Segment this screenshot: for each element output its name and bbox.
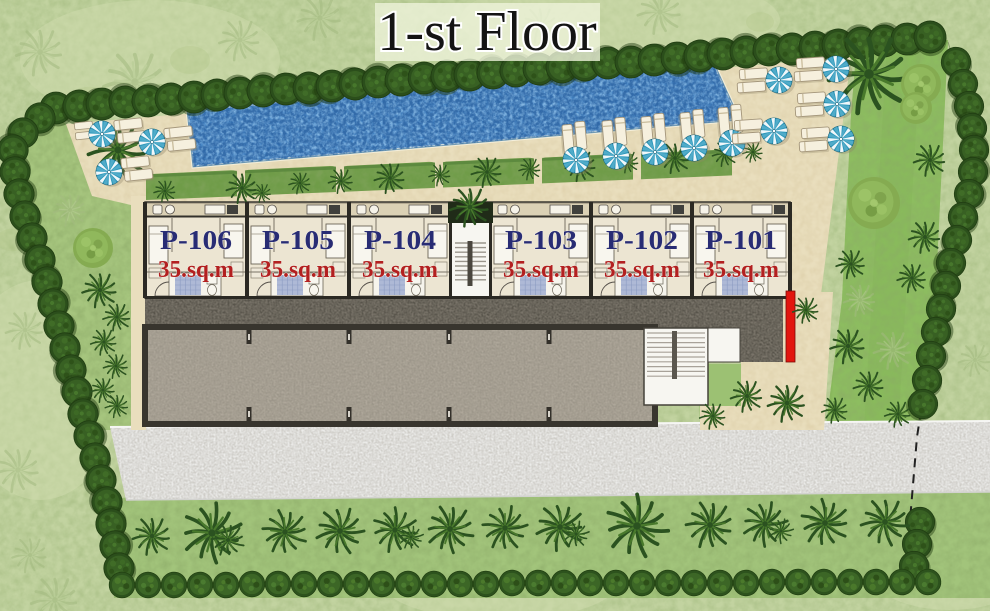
svg-text:35.sq.m: 35.sq.m [260,257,336,283]
svg-text:1-st Floor: 1-st Floor [377,1,597,63]
svg-text:P-101: P-101 [705,225,777,255]
svg-text:P-103: P-103 [505,225,577,255]
svg-text:P-106: P-106 [160,225,232,255]
svg-text:P-105: P-105 [262,225,334,255]
svg-text:35.sq.m: 35.sq.m [604,257,680,283]
svg-text:35.sq.m: 35.sq.m [158,257,234,283]
svg-text:P-102: P-102 [606,225,678,255]
svg-text:35.sq.m: 35.sq.m [703,257,779,283]
svg-text:P-104: P-104 [364,225,436,255]
svg-text:35.sq.m: 35.sq.m [503,257,579,283]
svg-text:35.sq.m: 35.sq.m [362,257,438,283]
